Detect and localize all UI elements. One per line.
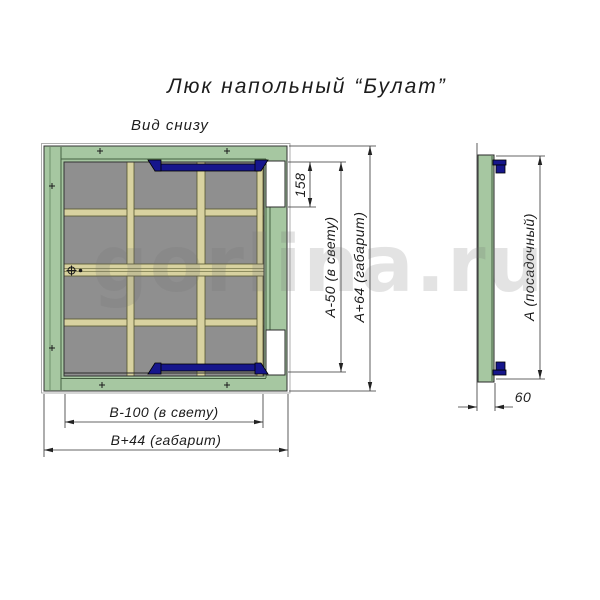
view-label: Вид снизу: [110, 118, 230, 133]
hinge-hook: [493, 160, 506, 165]
bottom-view: [42, 144, 291, 394]
hinge-hook: [493, 370, 506, 375]
dim-label-height-clear: А-50 (в свету): [323, 204, 339, 330]
hinge-cutout-top: [266, 161, 285, 207]
stiffener-horizontal-top: [64, 209, 264, 216]
arrowhead: [368, 382, 372, 391]
position-dot-icon: [79, 269, 83, 273]
hinge-side-bottom: [493, 362, 506, 375]
dim-label-height-seating: А (посадочный): [522, 202, 538, 332]
arrowhead: [339, 363, 343, 372]
hinge-hook: [496, 362, 505, 370]
arrowhead: [279, 448, 288, 452]
arrowhead: [65, 420, 74, 424]
drawing-title: Люк напольный “Булат”: [157, 76, 457, 97]
arrowhead: [368, 146, 372, 155]
arrowhead: [339, 162, 343, 171]
hinge-hook: [496, 165, 505, 173]
arrowhead: [468, 405, 477, 409]
dim-label-depth: 60: [503, 390, 543, 404]
dim-label-height-overall: А+64 (габарит): [352, 204, 368, 330]
dim-label-width-clear: В-100 (в свету): [84, 405, 244, 419]
hinge-cutout-bottom: [266, 330, 285, 375]
arrowhead: [254, 420, 263, 424]
arrowhead: [44, 448, 53, 452]
hinge-bar: [155, 164, 259, 171]
hinge-bar: [155, 364, 259, 371]
stiffener-horizontal-bottom: [64, 319, 264, 326]
hinge-side-top: [493, 160, 506, 173]
arrowhead: [538, 370, 542, 379]
arrowhead: [495, 405, 504, 409]
arrowhead: [538, 156, 542, 165]
dim-label-158: 158: [293, 165, 309, 205]
drawing-sheet: Люк напольный “Булат” Вид снизу 158 А-50…: [0, 0, 600, 600]
dim-label-width-overall: В+44 (габарит): [86, 433, 246, 447]
stiffener-horizontal-middle: [64, 264, 264, 276]
